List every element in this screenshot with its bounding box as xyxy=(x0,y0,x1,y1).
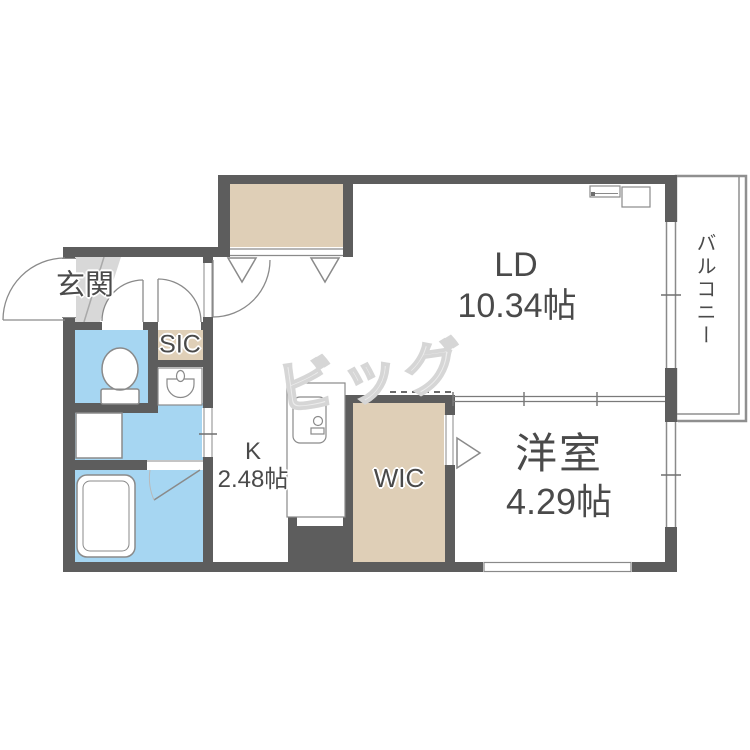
wall-wic-right-lower xyxy=(445,465,455,572)
room-label-balcony: バルコニー xyxy=(694,233,714,348)
sic-door-arc xyxy=(158,279,201,322)
room-label-wic: WIC xyxy=(374,465,425,491)
room-size-ld: 10.34帖 xyxy=(457,289,576,323)
sic-door-opening xyxy=(158,322,201,330)
closet-door-arrow-icon xyxy=(228,258,256,282)
wic-door xyxy=(444,415,480,468)
closet-floor xyxy=(230,184,343,247)
balcony-window xyxy=(661,222,681,368)
room-label-bedroom: 洋室 xyxy=(515,433,603,475)
wall-bath-top xyxy=(63,460,147,470)
toilet-door-opening xyxy=(102,322,143,330)
wash-basin-icon xyxy=(158,368,202,405)
air-conditioner-icon xyxy=(590,186,620,197)
wall-kitchen-stub xyxy=(288,517,297,528)
wall-kitchen-block xyxy=(288,526,350,572)
wall-closet-right xyxy=(343,184,353,257)
wall-connector xyxy=(218,175,230,257)
washing-machine-icon xyxy=(76,413,122,458)
door-arcs xyxy=(3,258,270,322)
room-label-sic: SIC xyxy=(159,333,201,358)
ld-bedroom-partition xyxy=(453,392,665,406)
room-label-entrance: 玄関 xyxy=(56,272,114,301)
bedroom-side-window xyxy=(661,422,681,527)
room-label-ld: LD xyxy=(494,248,537,282)
toilet-icon xyxy=(101,348,139,404)
closet-doors xyxy=(228,247,343,282)
wall-toilet-right xyxy=(148,330,158,413)
room-label-kitchen: K xyxy=(245,440,261,464)
bathtub-icon xyxy=(77,475,135,557)
floor-plan: ビッグ LD 10.34帖 洋室 4.29帖 K 2.48帖 WIC SIC 玄… xyxy=(0,0,750,750)
room-size-bedroom: 4.29帖 xyxy=(506,484,612,520)
room-size-kitchen: 2.48帖 xyxy=(218,468,289,492)
wall-top-ld xyxy=(218,175,677,184)
closet-door-arrow-icon xyxy=(311,258,339,282)
wic-door-arrow-icon xyxy=(457,438,480,468)
equipment-square-icon xyxy=(622,187,650,207)
bedroom-bottom-window xyxy=(483,561,632,573)
